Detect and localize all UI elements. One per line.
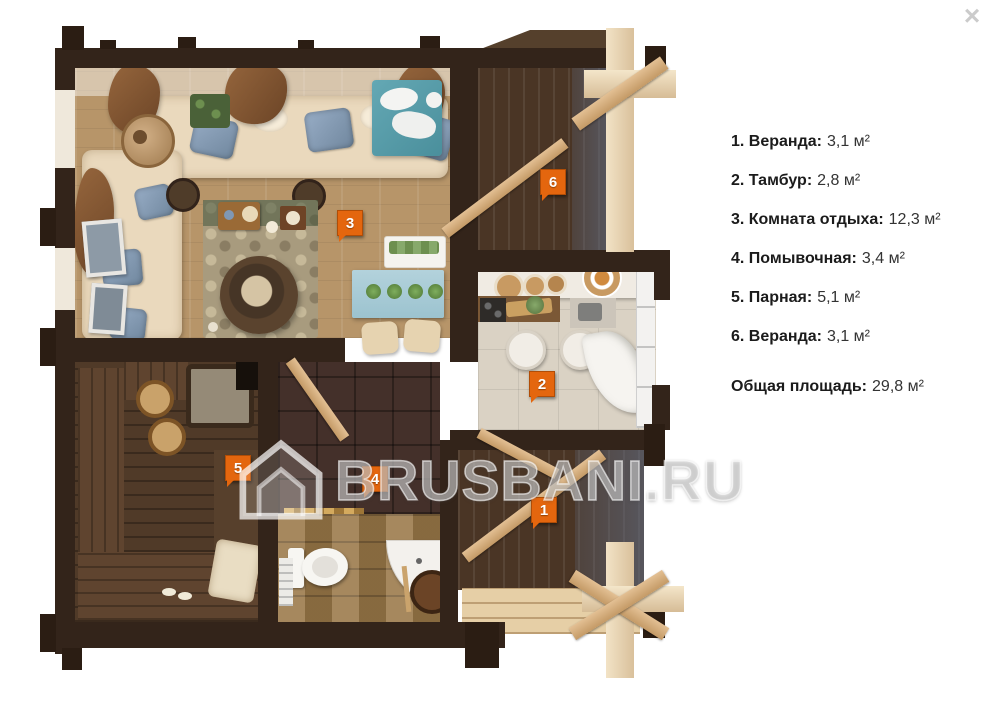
legend-item-5: 5. Парная:5,1 м² bbox=[731, 289, 860, 307]
green-plate bbox=[366, 284, 381, 299]
side-table bbox=[166, 178, 200, 212]
legend-label: 1. Веранда: bbox=[731, 133, 822, 150]
green-plate bbox=[408, 284, 423, 299]
wall-mid bbox=[55, 338, 345, 362]
window bbox=[55, 90, 75, 168]
window bbox=[55, 248, 75, 310]
green-plate bbox=[387, 284, 402, 299]
wooden-plate bbox=[523, 274, 547, 298]
picture-frame bbox=[82, 218, 127, 277]
log-end bbox=[62, 648, 82, 670]
badge-room-3: 3 bbox=[337, 210, 363, 236]
legend-label: 3. Комната отдыха: bbox=[731, 211, 884, 228]
log-end bbox=[40, 614, 56, 652]
legend-item-3: 3. Комната отдыха:12,3 м² bbox=[731, 211, 941, 229]
wooden-bucket bbox=[136, 380, 174, 418]
blue-pillow bbox=[303, 107, 354, 153]
log-end bbox=[100, 40, 116, 49]
basket-chair-center bbox=[133, 130, 147, 144]
toilet-seat bbox=[312, 556, 338, 578]
log-end bbox=[178, 37, 196, 48]
badge-room-1: 1 bbox=[531, 497, 557, 523]
badge-room-6: 6 bbox=[540, 169, 566, 195]
wall-stub bbox=[465, 622, 499, 668]
picture-frame bbox=[88, 283, 127, 335]
legend-label: 5. Парная: bbox=[731, 289, 812, 306]
cup bbox=[266, 221, 278, 233]
legend-total: Общая площадь:29,8 м² bbox=[731, 378, 924, 396]
wall-sauna-divider bbox=[258, 362, 278, 638]
berries bbox=[224, 210, 234, 220]
wooden-bucket bbox=[148, 418, 186, 456]
wall-washroom-right bbox=[440, 440, 458, 640]
legend-value: 12,3 м² bbox=[889, 211, 941, 228]
basket-chair bbox=[121, 114, 175, 168]
legend-total-value: 29,8 м² bbox=[872, 378, 924, 395]
ottoman bbox=[403, 318, 442, 353]
legend-item-4: 4. Помывочная:3,4 м² bbox=[731, 250, 905, 268]
log-end bbox=[298, 40, 314, 49]
log-end bbox=[62, 26, 84, 50]
sink bbox=[578, 303, 602, 321]
badge-room-4: 4 bbox=[362, 466, 388, 492]
plate bbox=[242, 206, 258, 222]
legend-total-label: Общая площадь: bbox=[731, 378, 867, 395]
legend-label: 4. Помывочная: bbox=[731, 250, 857, 267]
floor-plan-image: 3 6 2 5 4 1 bbox=[0, 0, 1000, 704]
veranda6-roof bbox=[478, 30, 608, 50]
drain bbox=[416, 558, 422, 564]
legend-value: 2,8 м² bbox=[817, 172, 860, 189]
legend-label: 6. Веранда: bbox=[731, 328, 822, 345]
legend-value: 3,4 м² bbox=[862, 250, 905, 267]
heater-corner bbox=[236, 362, 258, 390]
legend-value: 5,1 м² bbox=[817, 289, 860, 306]
kitchen-stool bbox=[506, 330, 546, 370]
plant-box bbox=[190, 94, 230, 128]
log-end bbox=[644, 424, 665, 466]
legend-item-1: 1. Веранда:3,1 м² bbox=[731, 133, 870, 151]
legend-item-2: 2. Тамбур:2,8 м² bbox=[731, 172, 860, 190]
flowers bbox=[526, 296, 544, 314]
log-end bbox=[40, 328, 56, 366]
close-button[interactable]: × bbox=[952, 0, 992, 32]
legend-value: 3,1 м² bbox=[827, 328, 870, 345]
plate bbox=[286, 211, 300, 225]
sphere-decor bbox=[426, 92, 442, 108]
planter-greens bbox=[389, 241, 439, 254]
outer-wall-top bbox=[55, 48, 608, 68]
green-plate bbox=[428, 284, 443, 299]
stove bbox=[480, 298, 506, 322]
legend-item-6: 6. Веранда:3,1 м² bbox=[731, 328, 870, 346]
log-beam-vertical bbox=[606, 28, 634, 252]
shell bbox=[208, 322, 218, 332]
wooden-plate bbox=[545, 273, 567, 295]
ottoman bbox=[361, 321, 399, 355]
wall-fragment bbox=[654, 250, 670, 300]
slipper bbox=[178, 592, 192, 600]
badge-room-5: 5 bbox=[225, 455, 251, 481]
legend-value: 3,1 м² bbox=[827, 133, 870, 150]
log-end bbox=[40, 208, 56, 246]
legend-label: 2. Тамбур: bbox=[731, 172, 812, 189]
badge-room-2: 2 bbox=[529, 371, 555, 397]
lightbox: 3 6 2 5 4 1 BRUSBANI.RU 1. Веранда:3,1 м… bbox=[0, 0, 1000, 704]
log-end bbox=[420, 36, 440, 48]
wall-kitchen-top bbox=[450, 250, 656, 272]
radiator bbox=[279, 558, 293, 606]
slipper bbox=[162, 588, 176, 596]
outer-wall-bottom bbox=[55, 622, 505, 648]
round-fire-table bbox=[220, 256, 298, 334]
